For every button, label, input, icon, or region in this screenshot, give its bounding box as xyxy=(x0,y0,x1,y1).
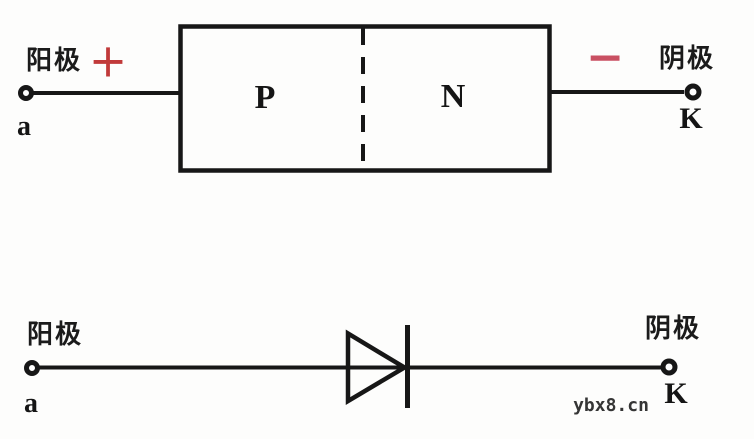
minus-sign: − xyxy=(586,39,625,76)
watermark-text: ybx8.cn xyxy=(573,397,649,415)
diode-figure: 阳极 + a P N − 阴极 K 阳极 a 阴极 K ybx8.cn xyxy=(0,0,754,439)
anode-terminal-circle xyxy=(21,88,32,99)
anode-label-top: 阳极 xyxy=(26,48,82,74)
anode-terminal-letter-top: a xyxy=(17,113,31,141)
cathode-label-bottom: 阴极 xyxy=(645,316,701,342)
anode-terminal-letter-bottom: a xyxy=(24,390,38,418)
cathode-terminal-circle xyxy=(687,86,699,98)
anode-terminal-circle xyxy=(27,363,38,374)
plus-sign: + xyxy=(89,43,128,80)
cathode-terminal-circle xyxy=(663,361,675,373)
cathode-terminal-letter-bottom: K xyxy=(664,379,687,409)
cathode-label-top: 阴极 xyxy=(659,46,715,72)
anode-label-bottom: 阳极 xyxy=(27,322,83,348)
cathode-terminal-letter-top: K xyxy=(679,104,702,134)
p-region-letter: P xyxy=(255,81,276,115)
n-region-letter: N xyxy=(441,80,466,114)
